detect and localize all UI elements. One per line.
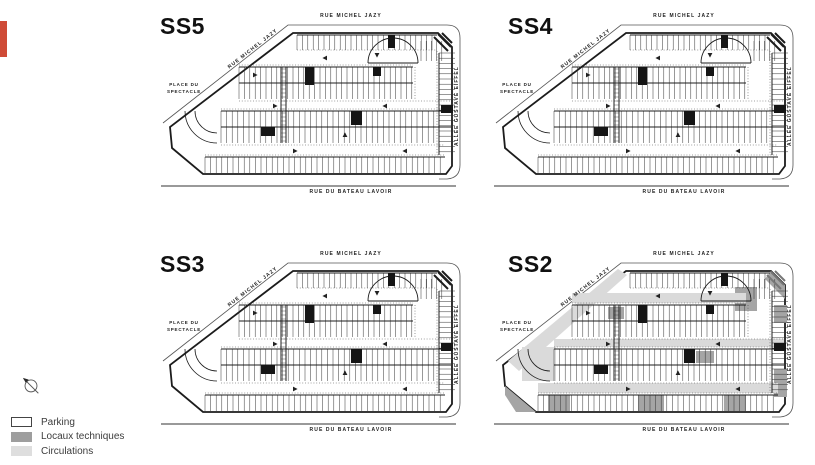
plan-title: SS4 bbox=[508, 13, 553, 40]
place-label: PLACE DU SPECTACLE bbox=[160, 319, 208, 333]
legend-label: Parking bbox=[41, 417, 75, 428]
legend-swatch-technical bbox=[11, 432, 32, 442]
place-label: PLACE DU SPECTACLE bbox=[493, 319, 541, 333]
plan-ss5: SS5 RUE MICHEL JAZY RUE MICHEL JAZY ALLE… bbox=[155, 5, 473, 205]
accent-bar bbox=[0, 21, 7, 57]
legend-item: Circulations bbox=[11, 444, 124, 459]
place-label: PLACE DU SPECTACLE bbox=[160, 81, 208, 95]
street-label-top: RUE MICHEL JAZY bbox=[618, 251, 750, 257]
legend-item: Parking bbox=[11, 415, 124, 430]
street-label-bottom: RUE DU BATEAU LAVOIR bbox=[285, 189, 417, 195]
legend-swatch-parking bbox=[11, 417, 32, 427]
legend: Parking Locaux techniques Circulations bbox=[11, 415, 124, 459]
street-label-bottom: RUE DU BATEAU LAVOIR bbox=[285, 427, 417, 433]
plan-ss3: SS3 RUE MICHEL JAZY RUE MICHEL JAZY ALLE… bbox=[155, 243, 473, 443]
legend-label: Locaux techniques bbox=[41, 431, 124, 442]
legend-label: Circulations bbox=[41, 446, 93, 457]
north-arrow-icon bbox=[20, 374, 42, 396]
legend-swatch-circulation bbox=[11, 446, 32, 456]
street-label-top: RUE MICHEL JAZY bbox=[285, 13, 417, 19]
plan-ss2: SS2 RUE MICHEL JAZY RUE MICHEL JAZY ALLE… bbox=[488, 243, 806, 443]
street-label-bottom: RUE DU BATEAU LAVOIR bbox=[618, 189, 750, 195]
street-label-top: RUE MICHEL JAZY bbox=[618, 13, 750, 19]
legend-item: Locaux techniques bbox=[11, 430, 124, 445]
street-label-right: ALLEE GUSTAVE EIFFEL bbox=[454, 298, 460, 390]
street-label-right: ALLEE GUSTAVE EIFFEL bbox=[787, 60, 793, 152]
plan-title: SS5 bbox=[160, 13, 205, 40]
place-label: PLACE DU SPECTACLE bbox=[493, 81, 541, 95]
plan-title: SS3 bbox=[160, 251, 205, 278]
plan-title: SS2 bbox=[508, 251, 553, 278]
street-label-top: RUE MICHEL JAZY bbox=[285, 251, 417, 257]
street-label-right: ALLEE GUSTAVE EIFFEL bbox=[787, 298, 793, 390]
street-label-right: ALLEE GUSTAVE EIFFEL bbox=[454, 60, 460, 152]
plan-ss4: SS4 RUE MICHEL JAZY RUE MICHEL JAZY ALLE… bbox=[488, 5, 806, 205]
street-label-bottom: RUE DU BATEAU LAVOIR bbox=[618, 427, 750, 433]
